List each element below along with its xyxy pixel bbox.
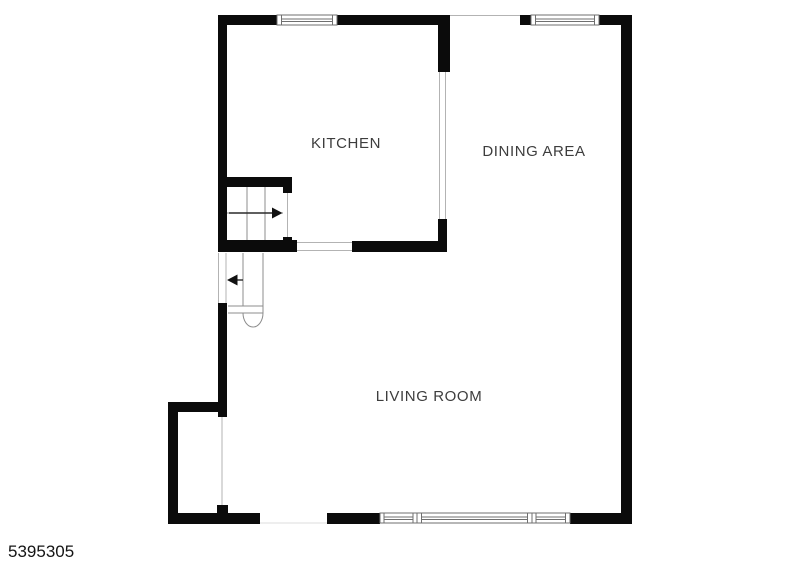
floorplan-drawing: KITCHEN DINING AREA LIVING ROOM bbox=[0, 0, 800, 564]
room-label-dining-area: DINING AREA bbox=[482, 143, 585, 160]
window-top-kitchen bbox=[277, 15, 337, 25]
wall bbox=[520, 15, 531, 25]
room-label-kitchen: KITCHEN bbox=[311, 135, 381, 152]
wall bbox=[218, 240, 297, 252]
wall bbox=[438, 219, 447, 241]
window-frame bbox=[277, 15, 337, 25]
wall bbox=[352, 241, 447, 252]
arrow-head bbox=[272, 208, 283, 219]
staircase-up bbox=[227, 187, 283, 240]
wall bbox=[327, 513, 380, 524]
wall bbox=[218, 177, 292, 187]
wall bbox=[438, 15, 450, 72]
walls bbox=[168, 15, 632, 524]
wall bbox=[168, 513, 260, 524]
room-label-living-room: LIVING ROOM bbox=[376, 388, 483, 405]
photo-id: 5395305 bbox=[8, 542, 74, 562]
stair-curved-end bbox=[243, 313, 263, 327]
window-frame bbox=[417, 513, 532, 523]
floorplan-canvas: KITCHEN DINING AREA LIVING ROOM 5395305 bbox=[0, 0, 800, 564]
window-frame bbox=[531, 15, 599, 25]
window-assembly-bottom bbox=[380, 513, 570, 523]
stairs-up-arrow-icon bbox=[229, 208, 283, 219]
wall bbox=[168, 402, 178, 524]
wall-openings bbox=[219, 16, 521, 524]
window-frame bbox=[380, 513, 417, 523]
arrow-head bbox=[227, 275, 238, 286]
wall bbox=[218, 15, 227, 252]
stairs-down-arrow-icon bbox=[227, 275, 243, 286]
wall bbox=[570, 513, 632, 524]
wall bbox=[217, 505, 228, 514]
staircase-down bbox=[227, 253, 263, 327]
wall bbox=[337, 15, 450, 25]
wall bbox=[621, 15, 632, 524]
window-top-dining bbox=[531, 15, 599, 25]
window-frame bbox=[532, 513, 570, 523]
wall bbox=[218, 303, 227, 417]
wall bbox=[283, 177, 292, 193]
